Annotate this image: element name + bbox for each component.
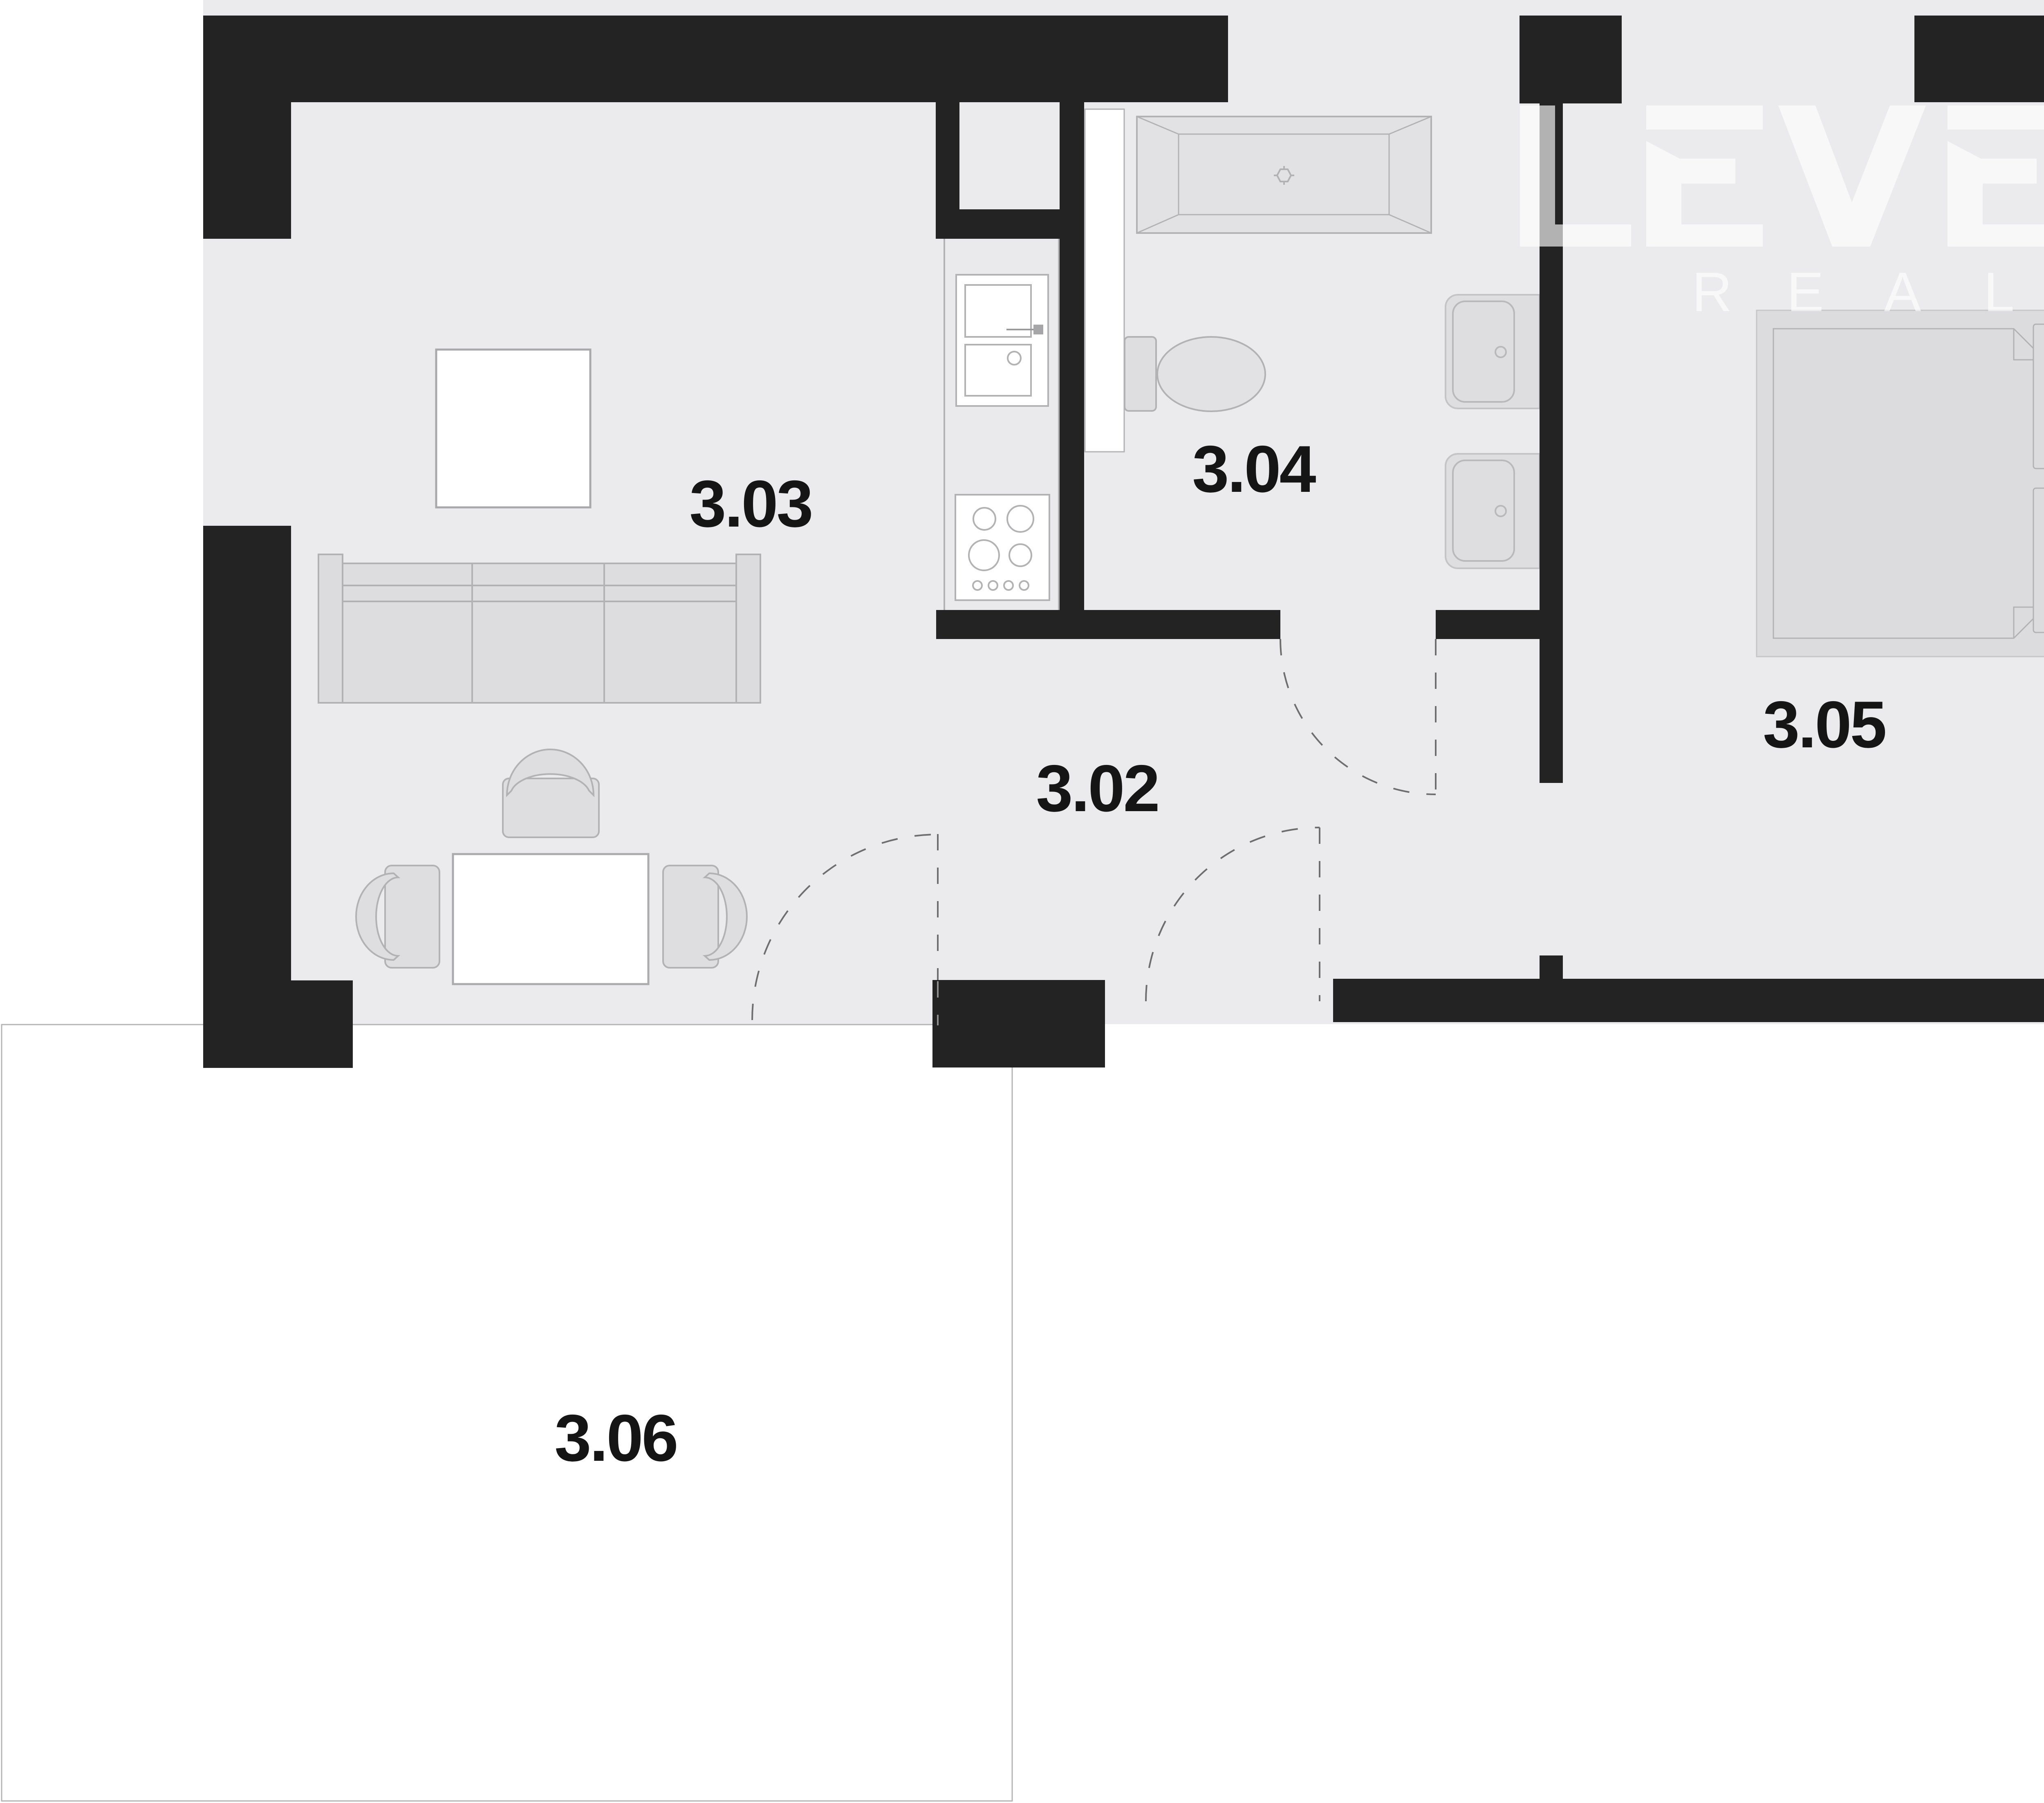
svg-text:3.05: 3.05 [1763,688,1885,762]
svg-text:R: R [1692,261,1732,323]
svg-text:L: L [1983,261,2015,323]
svg-text:3.02: 3.02 [1036,751,1158,825]
svg-text:3.06: 3.06 [554,1401,677,1475]
svg-text:3.04: 3.04 [1192,432,1316,506]
svg-text:A: A [1884,261,1921,323]
svg-text:E: E [1787,261,1824,323]
svg-text:3.03: 3.03 [689,467,811,541]
